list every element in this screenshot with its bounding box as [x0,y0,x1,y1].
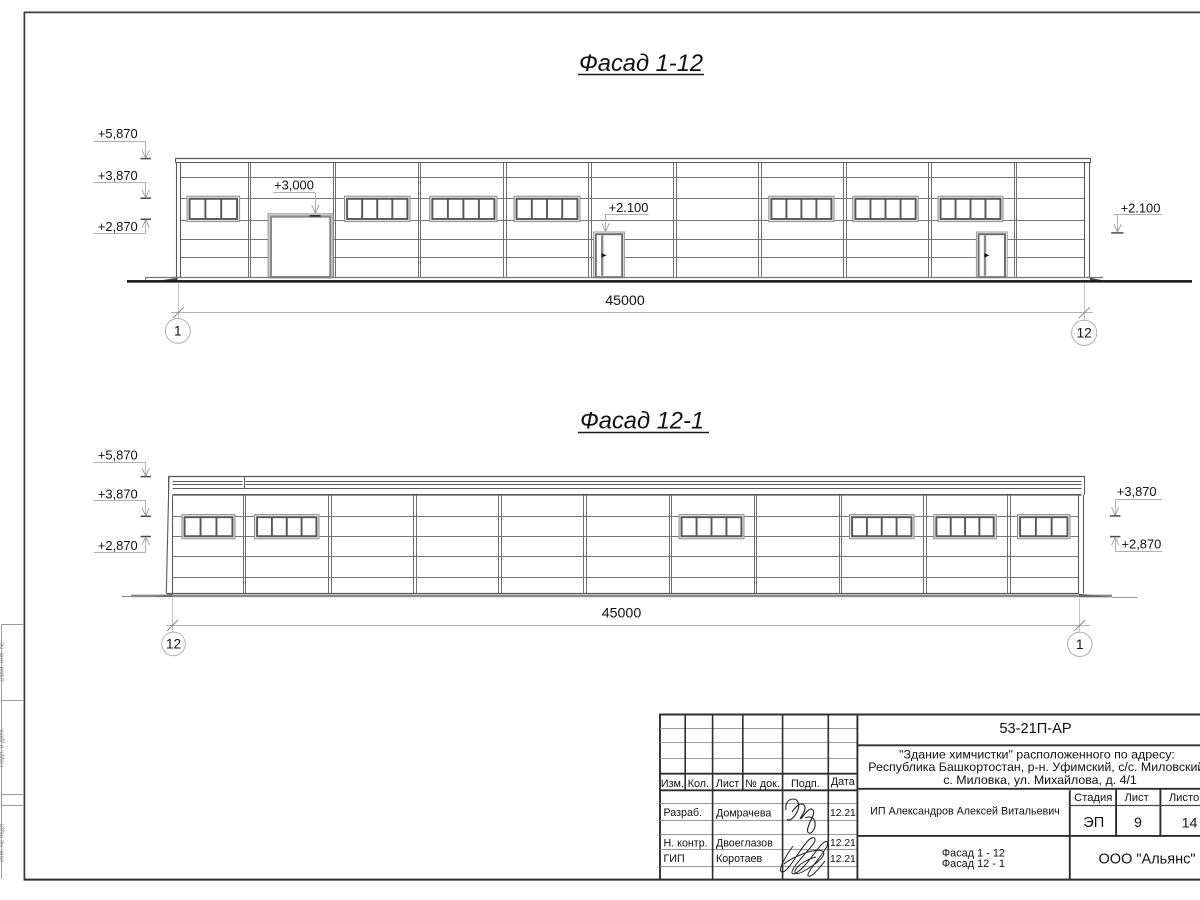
svg-text:Дата: Дата [831,776,855,788]
svg-text:Подп.: Подп. [791,778,820,790]
svg-text:ИП Александров Алексей Виталье: ИП Александров Алексей Витальевич [870,806,1060,818]
svg-text:1: 1 [174,324,182,339]
svg-text:Республика Башкортостан, р-н.: Республика Башкортостан, р-н. Уфимский, … [868,760,1200,774]
svg-text:Листов: Листов [1169,792,1200,804]
svg-text:45000: 45000 [605,293,645,309]
svg-text:Фасад 12 - 1: Фасад 12 - 1 [942,858,1005,870]
svg-text:№ док.: № док. [745,778,780,790]
svg-text:+2,870: +2,870 [98,219,138,234]
svg-text:+5,870: +5,870 [98,448,138,463]
svg-text:53-21П-АР: 53-21П-АР [999,721,1071,737]
svg-text:Двоеглазов: Двоеглазов [716,837,773,849]
svg-text:+3,000: +3,000 [274,178,314,193]
svg-text:45000: 45000 [602,606,642,622]
svg-text:+5,870: +5,870 [98,126,138,141]
svg-text:+2.100: +2.100 [609,200,649,215]
svg-text:Подп. и дата: Подп. и дата [0,729,6,767]
svg-text:12.21: 12.21 [830,838,856,849]
svg-text:+2.100: +2.100 [1121,200,1161,215]
svg-text:9: 9 [1134,815,1142,831]
svg-text:Фасад 1-12: Фасад 1-12 [579,51,703,77]
svg-text:Изм.: Изм. [661,778,684,790]
svg-text:12: 12 [166,637,181,652]
svg-text:Н. контр.: Н. контр. [664,838,708,850]
svg-text:Лист: Лист [1124,792,1148,804]
svg-text:+3,870: +3,870 [98,168,138,183]
svg-text:Кол.: Кол. [688,778,709,790]
svg-text:Коротаев: Коротаев [716,853,762,865]
svg-text:Фасад 12-1: Фасад 12-1 [580,409,704,435]
svg-text:Разраб.: Разраб. [664,807,702,819]
svg-text:с. Миловка, ул. Михайлова, д.: с. Миловка, ул. Михайлова, д. 4/1 [943,773,1137,787]
svg-text:+3,870: +3,870 [1117,484,1157,499]
svg-text:1: 1 [1076,637,1084,652]
svg-text:Лист: Лист [716,778,740,790]
svg-text:ЭП: ЭП [1083,815,1104,831]
svg-text:+2,870: +2,870 [1122,537,1162,552]
svg-text:14: 14 [1182,815,1198,831]
svg-text:+3,870: +3,870 [98,486,138,501]
svg-text:Инв. № подл.: Инв. № подл. [0,822,6,862]
svg-text:Взам. инв. №: Взам. инв. № [0,642,6,682]
svg-text:12.21: 12.21 [830,854,856,865]
svg-text:+2,870: +2,870 [98,538,138,553]
svg-text:ГИП: ГИП [664,853,685,865]
svg-text:12.21: 12.21 [830,808,856,819]
svg-text:12: 12 [1077,326,1092,341]
svg-text:Стадия: Стадия [1074,792,1112,804]
svg-text:Домрачева: Домрачева [716,808,771,820]
svg-text:ООО "Альянс": ООО "Альянс" [1099,851,1196,867]
